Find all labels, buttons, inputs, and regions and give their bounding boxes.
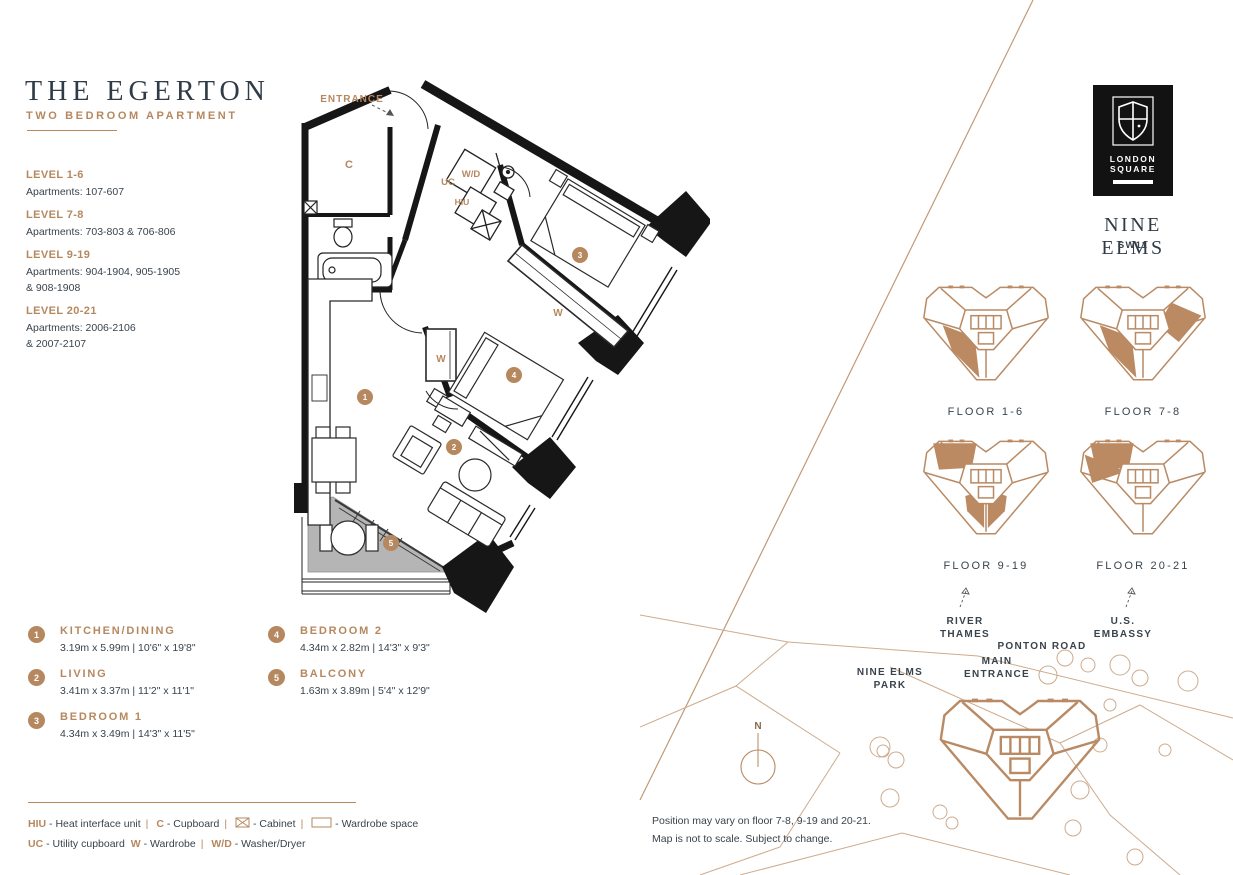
svg-text:3: 3: [578, 251, 583, 260]
floor-key-9-19: FLOOR 9-19: [918, 432, 1054, 572]
page-subtitle: TWO BEDROOM APARTMENT: [26, 110, 238, 122]
map-label-main-entrance: MAINENTRANCE: [952, 655, 1042, 681]
floor-key-label: FLOOR 9-19: [918, 560, 1054, 572]
room-marker-3: 3: [572, 247, 588, 263]
level-label: LEVEL 20-21: [26, 305, 256, 317]
floor-key-label: FLOOR 7-8: [1075, 406, 1211, 418]
level-label: LEVEL 1-6: [26, 169, 256, 181]
svg-text:4: 4: [512, 371, 517, 380]
shield-icon: [1111, 95, 1155, 147]
floor-key-20-21: FLOOR 20-21: [1075, 432, 1211, 572]
compass-icon: N: [741, 721, 775, 784]
svg-text:1: 1: [363, 393, 368, 402]
room-number-badge: 4: [268, 626, 285, 643]
room-legend-item: 2 LIVING 3.41m x 3.37m | 11'2" x 11'1": [28, 668, 263, 697]
utility-cupboard-label: UC: [441, 177, 455, 188]
level-apartments: Apartments: 107-607: [26, 184, 256, 200]
level-item: LEVEL 1-6 Apartments: 107-607: [26, 169, 256, 200]
room-marker-2: 2: [446, 439, 462, 455]
room-marker-4: 4: [506, 367, 522, 383]
room-number-badge: 3: [28, 712, 45, 729]
logo-wordmark: LONDONSQUARE: [1110, 154, 1156, 174]
floor-key-label: FLOOR 20-21: [1075, 560, 1211, 572]
svg-text:2: 2: [452, 443, 457, 452]
compass-n-label: N: [754, 721, 761, 732]
level-apartments: Apartments: 2006-2106& 2007-2107: [26, 320, 256, 352]
level-item: LEVEL 20-21 Apartments: 2006-2106& 2007-…: [26, 305, 256, 352]
washer-dryer-label: W/D: [462, 169, 481, 180]
map-label-nine-elms-park: NINE ELMSPARK: [845, 666, 935, 692]
cabinet-icon: [235, 817, 250, 831]
room-marker-5: 5: [383, 535, 399, 551]
room-marker-1: 1: [357, 389, 373, 405]
wardrobe-icon: [311, 817, 332, 831]
levels-list: LEVEL 1-6 Apartments: 107-607 LEVEL 7-8 …: [26, 160, 256, 352]
logo-underline: [1113, 180, 1153, 184]
level-item: LEVEL 9-19 Apartments: 904-1904, 905-190…: [26, 249, 256, 296]
wardrobe2-label: W: [436, 354, 446, 365]
room-number-badge: 1: [28, 626, 45, 643]
embassy-arrow-icon: [1126, 588, 1135, 607]
room-legend-item: 5 BALCONY 1.63m x 3.89m | 5'4" x 12'9": [268, 668, 503, 697]
key-line-1: HIU - Heat interface unit| C - Cupboard|…: [28, 817, 418, 831]
page-title: THE EGERTON: [25, 76, 270, 108]
room-legend-item: 4 BEDROOM 2 4.34m x 2.82m | 14'3" x 9'3": [268, 625, 503, 654]
room-legend-col1: 1 KITCHEN/DINING 3.19m x 5.99m | 10'6" x…: [28, 625, 263, 754]
floor-plan: ENTRANCE C W/D UC HIU W W 1 2 3 4 5: [290, 75, 710, 625]
title-rule: [27, 130, 117, 131]
disclaimer-notes: Position may vary on floor 7-8, 9-19 and…: [652, 812, 871, 848]
map-label-river-thames: RIVERTHAMES: [925, 615, 1005, 641]
wardrobe1-label: W: [553, 308, 563, 319]
room-legend-col2: 4 BEDROOM 2 4.34m x 2.82m | 14'3" x 9'3"…: [268, 625, 503, 711]
level-item: LEVEL 7-8 Apartments: 703-803 & 706-806: [26, 209, 256, 240]
svg-text:5: 5: [389, 539, 394, 548]
level-label: LEVEL 7-8: [26, 209, 256, 221]
map-building-footprint: [941, 699, 1099, 819]
floor-key-7-8: FLOOR 7-8: [1075, 278, 1211, 418]
map-label-ponton-road: PONTON ROAD: [992, 640, 1092, 653]
brochure-page: THE EGERTON TWO BEDROOM APARTMENT LEVEL …: [0, 0, 1233, 875]
hiu-label: HIU: [455, 197, 470, 207]
cupboard-label: C: [345, 159, 353, 171]
balcony-furniture: [320, 521, 378, 555]
level-label: LEVEL 9-19: [26, 249, 256, 261]
entrance-label: ENTRANCE: [320, 94, 384, 105]
key-line-2: UC - Utility cupboard W - Wardrobe| W/D …: [28, 838, 306, 850]
floor-key-1-6: FLOOR 1-6: [918, 278, 1054, 418]
level-apartments: Apartments: 904-1904, 905-1905& 908-1908: [26, 264, 256, 296]
river-arrow-icon: [960, 588, 969, 607]
floor-key-label: FLOOR 1-6: [918, 406, 1054, 418]
london-square-logo: LONDONSQUARE: [1093, 85, 1173, 196]
postcode: SW11: [1073, 240, 1193, 251]
room-legend-item: 1 KITCHEN/DINING 3.19m x 5.99m | 10'6" x…: [28, 625, 263, 654]
room-legend-item: 3 BEDROOM 1 4.34m x 3.49m | 14'3" x 11'5…: [28, 711, 263, 740]
key-rule: [28, 802, 356, 803]
map-label-us-embassy: U.S.EMBASSY: [1083, 615, 1163, 641]
room-number-badge: 5: [268, 669, 285, 686]
room-number-badge: 2: [28, 669, 45, 686]
development-name: NINE ELMS: [1073, 214, 1193, 260]
level-apartments: Apartments: 703-803 & 706-806: [26, 224, 256, 240]
